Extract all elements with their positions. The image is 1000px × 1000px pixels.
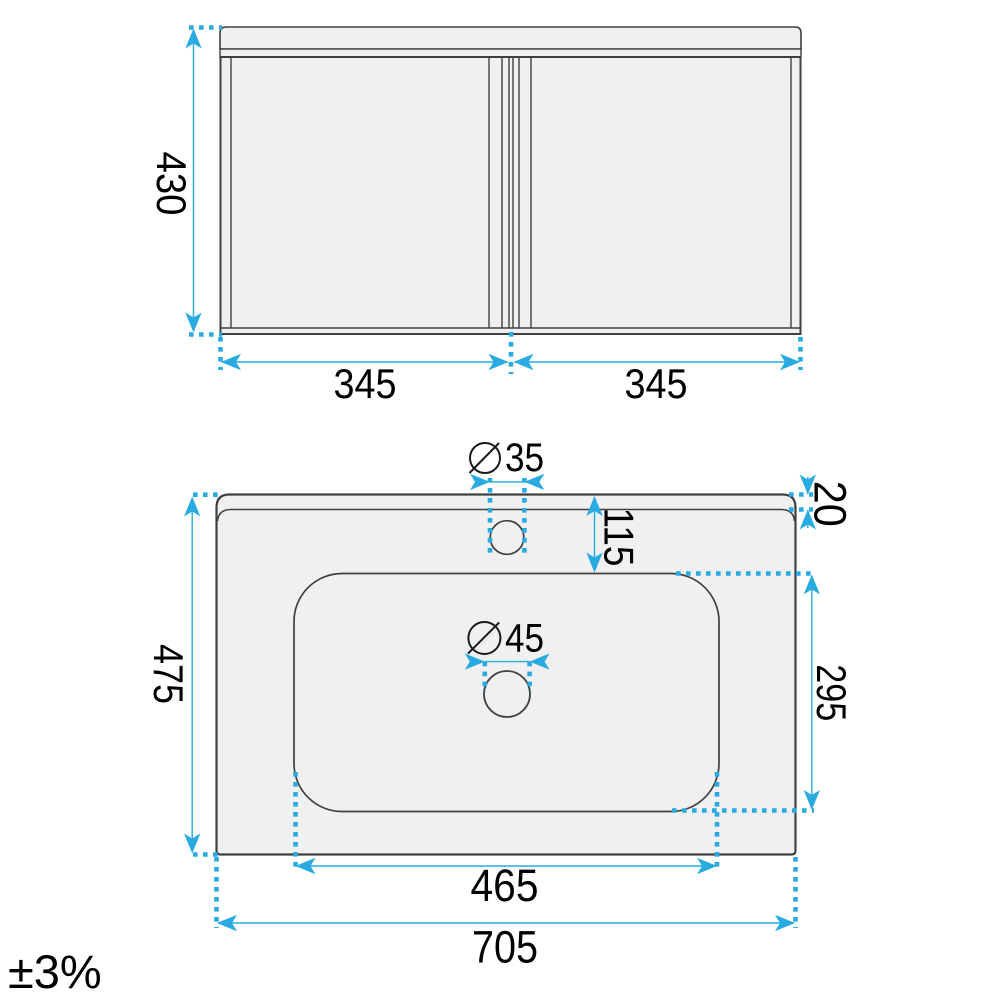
svg-text:345: 345 (334, 360, 397, 407)
svg-text:295: 295 (808, 664, 855, 721)
svg-text:345: 345 (625, 360, 688, 407)
svg-text:45: 45 (505, 617, 544, 661)
svg-text:115: 115 (596, 508, 643, 567)
svg-text:430: 430 (148, 152, 195, 216)
svg-text:35: 35 (505, 436, 544, 480)
svg-text:465: 465 (471, 860, 539, 911)
svg-text:20: 20 (805, 481, 856, 527)
svg-text:±3%: ±3% (8, 945, 102, 998)
svg-text:705: 705 (472, 922, 538, 973)
svg-text:475: 475 (145, 644, 192, 704)
